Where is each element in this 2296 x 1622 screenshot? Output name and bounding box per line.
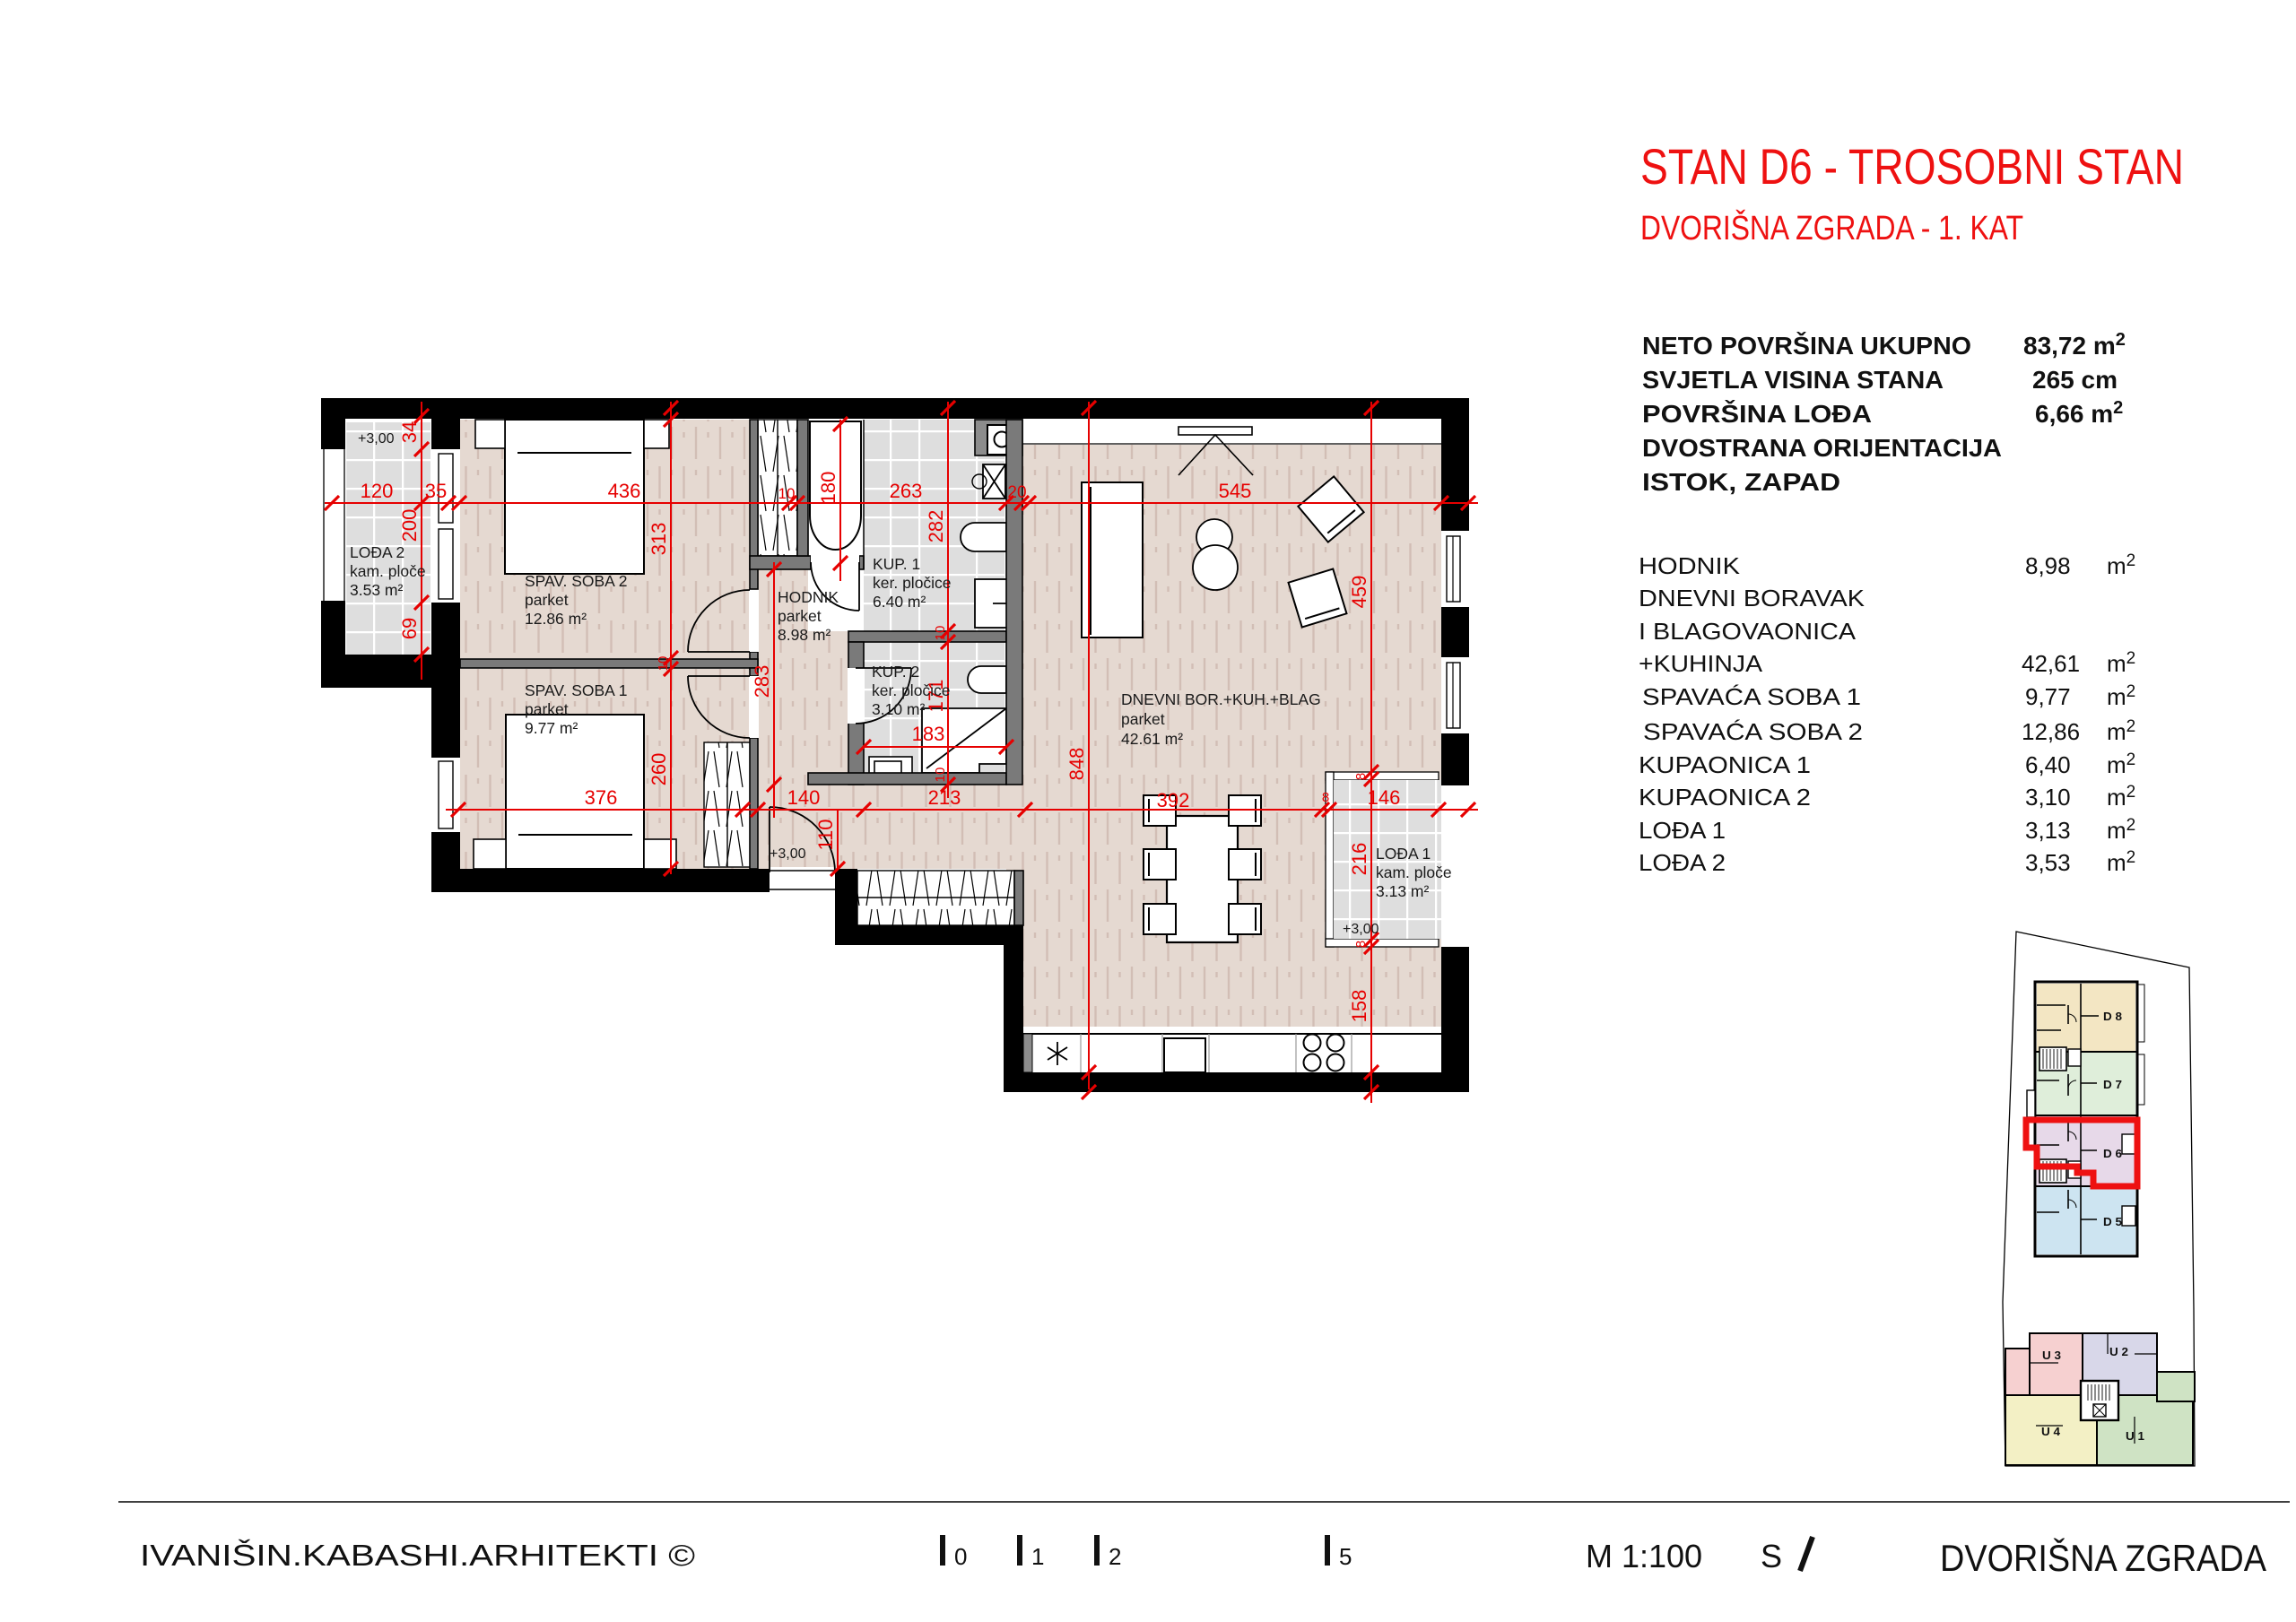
- svg-text:M 1:100: M 1:100: [1586, 1538, 1702, 1574]
- svg-text:SPAV. SOBA 1: SPAV. SOBA 1: [525, 681, 627, 699]
- svg-text:376: 376: [585, 786, 618, 809]
- svg-text:DNEVNI BOR.+KUH.+BLAG: DNEVNI BOR.+KUH.+BLAG: [1121, 690, 1321, 708]
- svg-text:+3,00: +3,00: [770, 846, 806, 862]
- svg-text:3.13 m²: 3.13 m²: [1376, 882, 1429, 900]
- svg-text:parket: parket: [778, 607, 822, 625]
- svg-text:10: 10: [933, 768, 948, 783]
- svg-text:LOĐA 2: LOĐA 2: [350, 543, 404, 561]
- svg-text:200: 200: [398, 509, 421, 542]
- svg-text:SPAVAĆA SOBA 2: SPAVAĆA SOBA 2: [1643, 718, 1863, 745]
- svg-text:213: 213: [928, 786, 961, 809]
- svg-text:9,77: 9,77: [2025, 683, 2071, 710]
- svg-text:313: 313: [648, 523, 670, 556]
- svg-text:263: 263: [890, 480, 923, 502]
- svg-text:120: 120: [361, 480, 394, 502]
- svg-text:8: 8: [1322, 790, 1329, 805]
- svg-text:5: 5: [1339, 1543, 1352, 1570]
- svg-text:DNEVNI BORAVAK: DNEVNI BORAVAK: [1639, 585, 1865, 612]
- svg-text:2: 2: [1109, 1543, 1121, 1570]
- svg-text:6.40 m²: 6.40 m²: [873, 593, 926, 611]
- svg-text:ker. pločice: ker. pločice: [873, 574, 952, 592]
- svg-text:U 1: U 1: [2126, 1429, 2144, 1443]
- svg-text:3.53 m²: 3.53 m²: [350, 581, 403, 599]
- svg-text:42,61: 42,61: [2022, 650, 2080, 677]
- svg-text:S: S: [1761, 1538, 1782, 1574]
- svg-text:158: 158: [1348, 990, 1370, 1023]
- svg-text:NETO POVRŠINA UKUPNO: NETO POVRŠINA UKUPNO: [1642, 331, 1971, 360]
- svg-text:SVJETLA VISINA STANA: SVJETLA VISINA STANA: [1642, 366, 1944, 394]
- svg-text:POVRŠINA LOĐA: POVRŠINA LOĐA: [1642, 399, 1872, 428]
- svg-text:10: 10: [933, 626, 948, 641]
- svg-text:parket: parket: [1121, 710, 1165, 728]
- svg-text:DVOSTRANA ORIJENTACIJA: DVOSTRANA ORIJENTACIJA: [1642, 434, 2002, 462]
- svg-text:+KUHINJA: +KUHINJA: [1639, 650, 1763, 677]
- svg-text:140: 140: [787, 786, 821, 809]
- svg-text:parket: parket: [525, 591, 569, 609]
- svg-text:SPAVAĆA SOBA 1: SPAVAĆA SOBA 1: [1642, 683, 1861, 710]
- svg-text:D 8: D 8: [2103, 1010, 2122, 1023]
- svg-text:D 5: D 5: [2103, 1215, 2122, 1228]
- svg-text:35: 35: [425, 480, 447, 502]
- svg-text:m2: m2: [2107, 750, 2135, 778]
- svg-text:m2: m2: [2107, 783, 2135, 811]
- svg-text:0: 0: [954, 1543, 967, 1570]
- svg-text:kam. ploče: kam. ploče: [1376, 863, 1452, 881]
- svg-text:STAN D6 - TROSOBNI STAN: STAN D6 - TROSOBNI STAN: [1640, 138, 2184, 195]
- svg-text:10: 10: [778, 485, 796, 502]
- svg-text:1: 1: [1031, 1543, 1044, 1570]
- svg-text:8.98 m²: 8.98 m²: [778, 626, 831, 644]
- svg-text:LOĐA 1: LOĐA 1: [1376, 845, 1431, 863]
- svg-text:392: 392: [1157, 789, 1190, 811]
- svg-text:216: 216: [1348, 843, 1370, 876]
- svg-text:DVORIŠNA ZGRADA: DVORIŠNA ZGRADA: [1940, 1537, 2266, 1579]
- svg-text:6,66 m2: 6,66 m2: [2035, 398, 2123, 428]
- svg-text:parket: parket: [525, 700, 569, 718]
- svg-text:D 6: D 6: [2103, 1147, 2122, 1160]
- svg-text:9.77 m²: 9.77 m²: [525, 719, 578, 737]
- svg-text:LOĐA 2: LOĐA 2: [1639, 849, 1726, 876]
- svg-text:3,10: 3,10: [2025, 784, 2071, 811]
- svg-text:6,40: 6,40: [2025, 751, 2071, 778]
- svg-text:IVANIŠIN.KABASHI.ARHITEKTI ©: IVANIŠIN.KABASHI.ARHITEKTI ©: [140, 1539, 695, 1572]
- svg-text:459: 459: [1348, 576, 1370, 609]
- svg-text:283: 283: [751, 665, 773, 698]
- svg-text:12,86: 12,86: [2022, 718, 2080, 745]
- svg-text:42.61 m²: 42.61 m²: [1121, 730, 1183, 748]
- svg-text:183: 183: [912, 723, 945, 745]
- svg-text:KUPAONICA 2: KUPAONICA 2: [1639, 784, 1811, 811]
- svg-text:KUPAONICA 1: KUPAONICA 1: [1639, 751, 1811, 778]
- svg-text:260: 260: [648, 753, 670, 786]
- svg-text:m2: m2: [2107, 649, 2135, 677]
- svg-text:I BLAGOVAONICA: I BLAGOVAONICA: [1639, 618, 1857, 645]
- svg-text:D 7: D 7: [2103, 1078, 2122, 1091]
- svg-text:3.10 m²: 3.10 m²: [872, 700, 925, 718]
- svg-text:+3,00: +3,00: [358, 431, 395, 447]
- svg-text:ISTOK, ZAPAD: ISTOK, ZAPAD: [1642, 468, 1840, 496]
- svg-text:146: 146: [1368, 786, 1401, 809]
- svg-text:HODNIK: HODNIK: [1639, 552, 1741, 579]
- svg-text:110: 110: [814, 819, 837, 850]
- svg-text:m2: m2: [2107, 848, 2135, 876]
- svg-text:436: 436: [608, 480, 641, 502]
- svg-text:m2: m2: [2107, 551, 2135, 579]
- svg-text:180: 180: [817, 472, 839, 505]
- svg-text:34: 34: [398, 421, 421, 443]
- svg-text:SPAV. SOBA 2: SPAV. SOBA 2: [525, 572, 627, 590]
- svg-text:3,13: 3,13: [2025, 817, 2071, 844]
- svg-text:m2: m2: [2107, 682, 2135, 710]
- svg-text:U 2: U 2: [2109, 1345, 2128, 1358]
- svg-text:265 cm: 265 cm: [2032, 366, 2118, 394]
- svg-text:m2: m2: [2107, 717, 2135, 745]
- svg-text:ker. pločice: ker. pločice: [872, 681, 951, 699]
- svg-text:69: 69: [398, 618, 421, 639]
- svg-text:HODNIK: HODNIK: [778, 588, 839, 606]
- svg-text:8: 8: [1353, 941, 1369, 948]
- svg-text:KUP. 2: KUP. 2: [872, 663, 919, 681]
- svg-text:8: 8: [1353, 773, 1369, 780]
- svg-text:+3,00: +3,00: [1343, 922, 1379, 937]
- svg-text:KUP. 1: KUP. 1: [873, 555, 920, 573]
- svg-text:12.86 m²: 12.86 m²: [525, 610, 587, 628]
- svg-text:LOĐA 1: LOĐA 1: [1639, 817, 1726, 844]
- svg-text:8,98: 8,98: [2025, 552, 2071, 579]
- svg-text:83,72 m2: 83,72 m2: [2023, 330, 2126, 360]
- svg-text:282: 282: [925, 510, 947, 543]
- svg-text:kam. ploče: kam. ploče: [350, 562, 426, 580]
- svg-text:10: 10: [656, 656, 671, 672]
- svg-text:3,53: 3,53: [2025, 849, 2071, 876]
- svg-text:U 4: U 4: [2041, 1425, 2061, 1438]
- svg-text:U 3: U 3: [2042, 1349, 2061, 1362]
- svg-text:m2: m2: [2107, 816, 2135, 844]
- svg-text:848: 848: [1065, 748, 1088, 781]
- svg-text:20: 20: [1007, 483, 1026, 502]
- svg-text:545: 545: [1219, 480, 1252, 502]
- svg-text:DVORIŠNA ZGRADA - 1. KAT: DVORIŠNA ZGRADA - 1. KAT: [1640, 208, 2023, 247]
